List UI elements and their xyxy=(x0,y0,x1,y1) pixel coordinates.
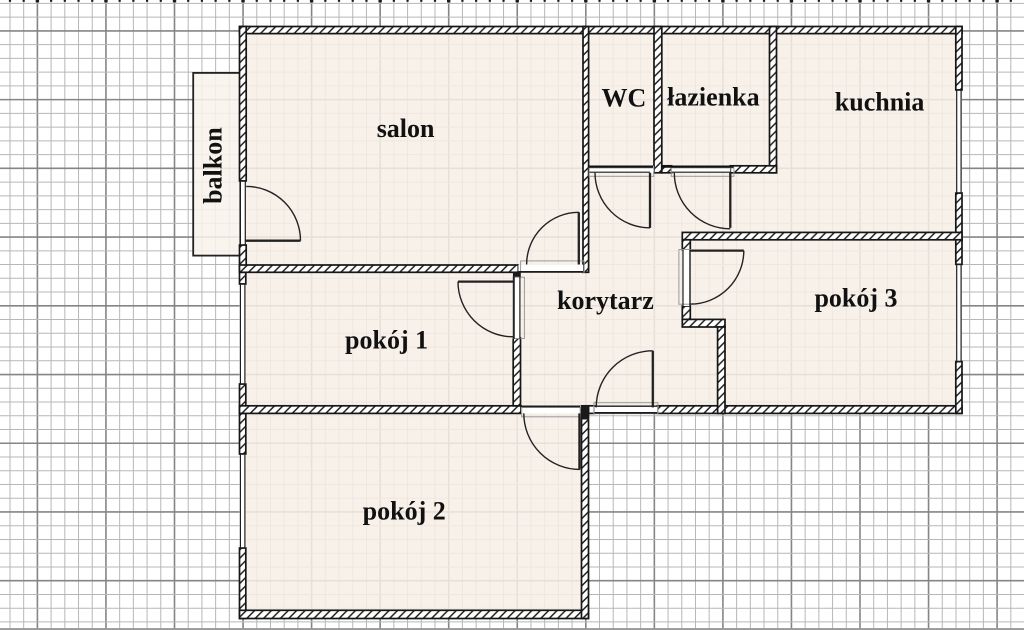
svg-text:pokój 3: pokój 3 xyxy=(814,284,897,313)
svg-text:pokój 2: pokój 2 xyxy=(363,497,446,526)
svg-text:pokój 1: pokój 1 xyxy=(345,326,428,355)
svg-text:kuchnia: kuchnia xyxy=(835,88,925,117)
svg-text:korytarz: korytarz xyxy=(557,286,654,315)
svg-text:salon: salon xyxy=(377,114,435,143)
svg-text:balkon: balkon xyxy=(199,127,228,204)
svg-text:WC: WC xyxy=(602,83,647,112)
svg-text:łazienka: łazienka xyxy=(667,82,759,111)
